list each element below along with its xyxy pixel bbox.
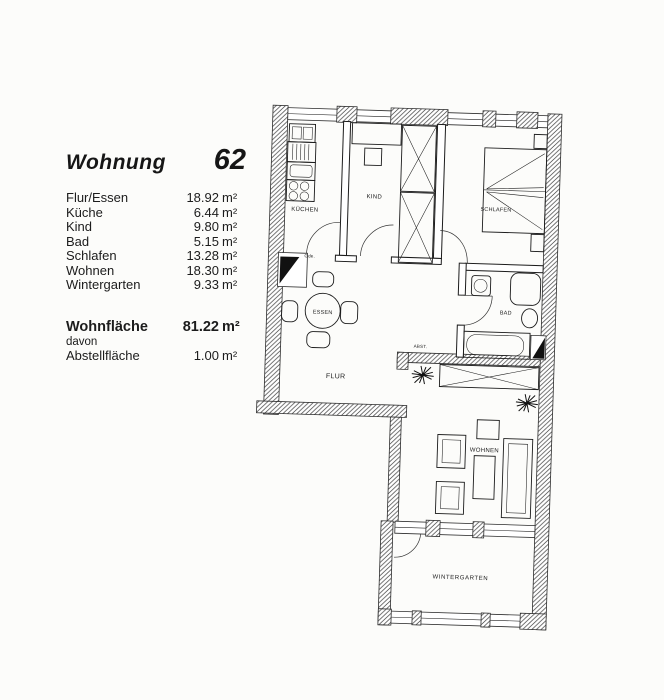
- nightstand: [531, 234, 545, 251]
- area-unit: m²: [222, 278, 246, 293]
- room-area-row: Schlafen 13.28 m²: [66, 249, 246, 264]
- wohnen-room: [435, 418, 533, 518]
- total-area-row: Wohnfläche 81.22 m²: [66, 319, 246, 335]
- wall-top-segment: [391, 108, 448, 126]
- kitchen-drainer: [287, 142, 316, 163]
- window-post: [412, 611, 421, 625]
- area-unit: m²: [222, 191, 246, 206]
- room-label-garderobe: Gde.: [304, 253, 315, 258]
- plant-icon: [516, 394, 539, 413]
- room-label: Wohnen: [66, 264, 173, 279]
- kind-room: [348, 123, 436, 264]
- room-label: Wintergarten: [66, 278, 173, 293]
- wardrobe-cross: [400, 125, 436, 192]
- storage-area: 1.00: [173, 349, 219, 364]
- chair: [312, 271, 333, 287]
- room-label-wohnen: WOHNEN: [470, 448, 499, 455]
- wall-schlafen-bad: [465, 263, 543, 272]
- room-area: 5.15: [173, 235, 219, 250]
- info-panel: Wohnung 62 Flur/Essen 18.92 m² Küche 6.4…: [66, 144, 246, 363]
- chair: [307, 331, 330, 348]
- area-unit: m²: [222, 235, 246, 250]
- kind-bed: [352, 123, 402, 146]
- wall-kind-schlafen: [433, 124, 445, 258]
- door-arc-kueche: [306, 221, 340, 255]
- coffee-table: [473, 456, 495, 500]
- window-post: [520, 613, 546, 630]
- floor-plan: KÜCHEN KIND SCHLAFEN BAD ESSEN FLUR ABST…: [256, 88, 572, 634]
- room-label-schlafen: SCHLAFEN: [480, 207, 511, 214]
- room-label-kueche: KÜCHEN: [291, 206, 318, 214]
- wardrobe-cross: [398, 192, 434, 263]
- apartment-number: 62: [214, 144, 246, 177]
- kueche-room: [286, 124, 316, 202]
- area-unit: m²: [222, 349, 246, 364]
- kitchen-cabinet-detail: [292, 127, 301, 139]
- area-unit: m²: [222, 319, 246, 335]
- wall-bad-left-upper: [458, 263, 466, 295]
- wall-kueche-kind: [339, 121, 350, 255]
- room-label: Küche: [66, 206, 173, 221]
- window-post: [337, 106, 357, 123]
- apartment-title: Wohnung: [66, 151, 166, 175]
- wintergarten-structure: [378, 519, 549, 630]
- room-area-row: Flur/Essen 18.92 m²: [66, 191, 246, 206]
- total-label: Wohnfläche: [66, 319, 171, 335]
- room-area: 18.30: [173, 264, 219, 279]
- armchair: [437, 434, 466, 468]
- schlafen-room: [482, 133, 548, 252]
- area-unit: m²: [222, 264, 246, 279]
- room-area-row: Kind 9.80 m²: [66, 220, 246, 235]
- closet-cross: [439, 365, 539, 390]
- room-area-row: Küche 6.44 m²: [66, 206, 246, 221]
- burner-icon: [300, 182, 309, 191]
- outer-walls: [256, 105, 562, 630]
- room-area: 18.92: [173, 191, 219, 206]
- room-area: 6.44: [173, 206, 219, 221]
- armchair-cushion: [442, 440, 461, 464]
- area-unit: m²: [222, 206, 246, 221]
- total-area: 81.22: [171, 319, 219, 335]
- entrance: [277, 252, 307, 287]
- room-area: 13.28: [173, 249, 219, 264]
- chair: [281, 301, 298, 322]
- chair: [340, 301, 358, 324]
- washbasin-icon: [474, 279, 487, 292]
- burner-icon: [300, 192, 309, 201]
- plan-content: KÜCHEN KIND SCHLAFEN BAD ESSEN FLUR ABST…: [256, 104, 562, 630]
- side-table: [477, 420, 500, 440]
- top-window-band: [288, 105, 548, 129]
- room-label-kind: KIND: [366, 194, 382, 200]
- kitchen-cabinet-detail: [303, 127, 312, 139]
- door-arc-bad: [461, 295, 492, 326]
- area-unit: m²: [222, 220, 246, 235]
- window-post: [426, 520, 440, 536]
- sofa-cushion: [506, 444, 527, 514]
- room-label: Kind: [66, 220, 173, 235]
- davon-label: davon: [66, 336, 246, 348]
- room-area-row: Wohnen 18.30 m²: [66, 264, 246, 279]
- wall-stub: [397, 352, 409, 369]
- room-area-list: Flur/Essen 18.92 m² Küche 6.44 m² Kind 9…: [66, 191, 246, 293]
- plant-icon: [411, 366, 434, 385]
- toilet-icon: [521, 309, 538, 328]
- storage-label: Abstellfläche: [66, 349, 173, 364]
- storage-zone: [411, 364, 539, 413]
- window-post: [473, 522, 484, 538]
- room-label-flur: FLUR: [326, 373, 346, 381]
- room-label-bad: BAD: [500, 310, 512, 316]
- bed-middle-line: [484, 190, 546, 192]
- wall-cap: [335, 255, 356, 262]
- drainer-lines: [292, 144, 308, 160]
- room-area-row: Wintergarten 9.33 m²: [66, 278, 246, 293]
- armchair-cushion: [441, 487, 460, 510]
- armchair: [435, 481, 464, 514]
- burner-icon: [289, 191, 298, 200]
- sink-basin: [290, 165, 312, 178]
- room-area-row: Bad 5.15 m²: [66, 235, 246, 250]
- wall-wohnen-left: [387, 417, 401, 522]
- burner-icon: [289, 181, 298, 190]
- room-label-essen: ESSEN: [313, 310, 333, 317]
- window-post: [483, 111, 496, 127]
- room-label: Flur/Essen: [66, 191, 173, 206]
- door-arc-wintergarten: [394, 531, 421, 558]
- bathtub-inner: [466, 334, 524, 356]
- apartment-heading: Wohnung 62: [66, 144, 246, 177]
- window-post: [378, 609, 391, 625]
- scanned-floorplan-page: { "panel": { "title": "Wohnung", "number…: [0, 0, 664, 700]
- room-area: 9.33: [173, 278, 219, 293]
- room-area: 9.80: [173, 220, 219, 235]
- kitchen-sink: [287, 162, 316, 181]
- kind-table: [364, 148, 382, 166]
- storage-area-row: Abstellfläche 1.00 m²: [66, 349, 246, 364]
- door-arc-schlafen: [439, 230, 468, 263]
- kitchen-cabinet: [289, 124, 316, 143]
- window-post: [517, 112, 538, 129]
- wall-flur-bottom: [256, 401, 406, 418]
- shower: [510, 273, 541, 306]
- area-unit: m²: [222, 249, 246, 264]
- room-label: Schlafen: [66, 249, 173, 264]
- room-label: Bad: [66, 235, 173, 250]
- window-post: [481, 613, 490, 627]
- sofa: [501, 439, 532, 519]
- door-arc-kind: [360, 224, 393, 257]
- room-label-abst: ABST.: [414, 344, 428, 349]
- room-label-wintergarten: WINTERGARTEN: [432, 574, 488, 582]
- nightstand: [534, 134, 547, 148]
